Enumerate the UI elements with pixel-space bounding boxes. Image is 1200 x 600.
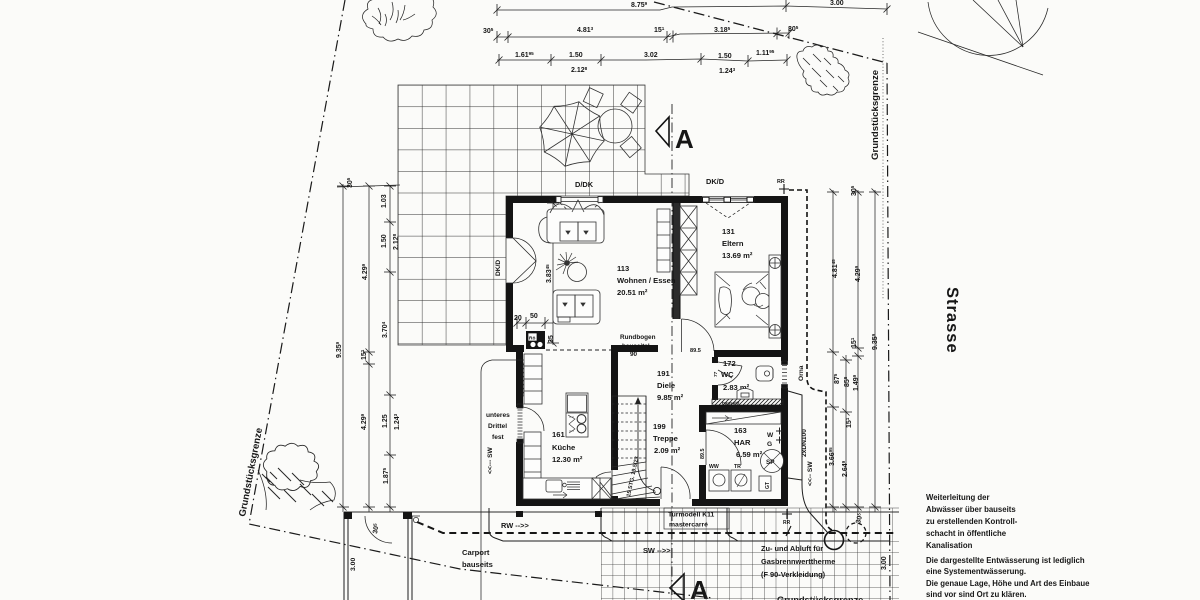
svg-text:1.03: 1.03 [381,194,388,208]
svg-text:Rundbogen: Rundbogen [620,334,656,341]
svg-text:50: 50 [530,313,538,320]
svg-text:Carport: Carport [462,548,490,557]
svg-text:G: G [767,441,772,448]
svg-text:172: 172 [723,359,736,368]
svg-text:3.00: 3.00 [350,558,357,571]
svg-text:20: 20 [514,315,522,322]
svg-text:1.50: 1.50 [569,52,583,59]
svg-text:1.50: 1.50 [718,53,732,60]
svg-text:bauseitl: bauseitl [722,401,739,406]
svg-text:WC: WC [721,370,734,379]
svg-text:fest: fest [492,434,505,441]
svg-text:Orna: Orna [798,365,805,381]
svg-text:W: W [767,432,774,439]
svg-text:Turmodell K11: Turmodell K11 [668,512,715,519]
svg-text:89.5: 89.5 [700,449,706,460]
svg-text:Diele: Diele [657,381,675,390]
svg-text:Rö: Rö [529,336,535,342]
svg-text:mastercarré: mastercarré [669,522,708,529]
svg-text:77: 77 [713,371,719,377]
svg-text:TR: TR [734,464,741,470]
svg-text:HAR: HAR [734,438,751,447]
svg-text:schacht in öffentliche: schacht in öffentliche [926,529,1007,538]
svg-text:<<--- SW: <<--- SW [487,446,494,474]
svg-text:Eltern: Eltern [722,239,744,248]
svg-text:163: 163 [734,426,747,435]
svg-text:Grundstücksgrenze: Grundstücksgrenze [870,70,881,160]
svg-text:sind vor sind Ort zu klären.: sind vor sind Ort zu klären. [926,590,1027,599]
svg-text:Gasbrennwerttherme: Gasbrennwerttherme [761,557,835,566]
svg-text:Weiterleitung der: Weiterleitung der [926,493,990,502]
svg-text:Kanalisation: Kanalisation [926,541,973,550]
svg-text:20.51 m²: 20.51 m² [617,288,648,297]
svg-text:199: 199 [653,422,666,431]
svg-text:D/DK: D/DK [575,180,594,189]
svg-text:<<-- SW: <<-- SW [807,461,814,486]
svg-text:unteres: unteres [486,412,510,419]
svg-text:zu erstellenden Kontroll-: zu erstellenden Kontroll- [926,517,1018,526]
svg-text:3.02: 3.02 [644,52,658,59]
svg-text:eine Systementwässerung.: eine Systementwässerung. [926,567,1026,576]
svg-text:191: 191 [657,369,670,378]
svg-text:2.09 m²: 2.09 m² [654,446,681,455]
svg-text:(F 90-Verkleidung): (F 90-Verkleidung) [761,570,826,579]
svg-text:SP: SP [766,459,775,466]
svg-text:1.50: 1.50 [381,234,388,248]
svg-text:12.30 m²: 12.30 m² [552,455,583,464]
svg-text:RR: RR [783,520,791,526]
svg-text:90: 90 [630,351,638,358]
svg-text:1.25: 1.25 [382,414,389,428]
svg-text:113: 113 [617,264,629,273]
svg-text:Strasse: Strasse [943,287,961,354]
svg-text:Die dargestellte Entwässerung: Die dargestellte Entwässerung ist ledigl… [926,556,1085,565]
svg-text:bauseits: bauseits [462,560,493,569]
svg-text:Drittel: Drittel [488,423,507,430]
svg-text:9.85 m²: 9.85 m² [657,393,684,402]
svg-text:RW -->>: RW -->> [501,521,529,530]
svg-text:Abwässer über bauseits: Abwässer über bauseits [926,505,1016,514]
svg-text:89.5: 89.5 [690,348,701,354]
svg-text:3.00: 3.00 [830,0,844,7]
svg-text:WW: WW [709,464,719,470]
svg-text:DK/D: DK/D [706,177,725,186]
svg-text:Zu- und Abluft für: Zu- und Abluft für [761,544,823,553]
svg-text:SW -->>: SW -->> [643,546,671,555]
svg-text:DK/D: DK/D [495,260,502,276]
svg-text:6.59 m²: 6.59 m² [736,450,763,459]
svg-text:2xDN100: 2xDN100 [801,429,808,457]
svg-text:Wohnen / Essen: Wohnen / Essen [617,276,676,285]
svg-text:Küche: Küche [552,443,575,452]
svg-text:Treppe: Treppe [653,434,678,443]
svg-text:131: 131 [722,227,735,236]
svg-text:161: 161 [552,430,565,439]
svg-text:13.69 m²: 13.69 m² [722,251,753,260]
svg-text:35: 35 [548,335,555,343]
svg-text:A: A [675,124,694,154]
svg-text:Die genaue Lage, Höhe und Art: Die genaue Lage, Höhe und Art des Einbau… [926,579,1090,588]
svg-text:GT: GT [765,482,771,489]
